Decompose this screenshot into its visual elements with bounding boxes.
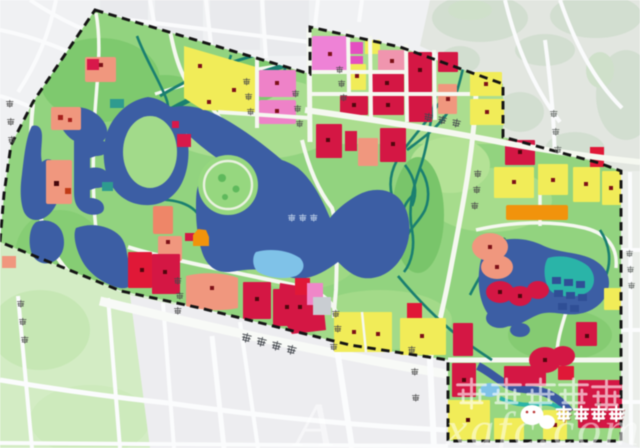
svg-text:A: A xyxy=(291,392,334,448)
